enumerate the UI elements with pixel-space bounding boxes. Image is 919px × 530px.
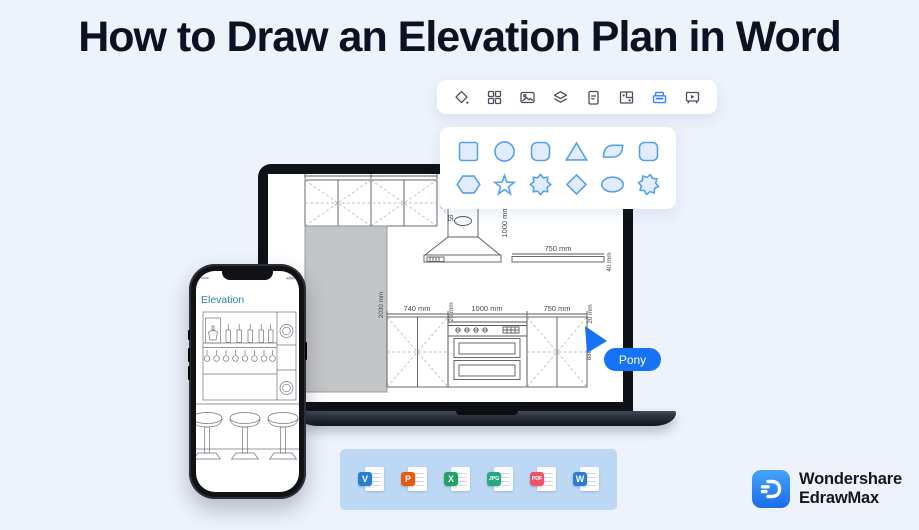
- shape-ellipse[interactable]: [599, 171, 626, 198]
- shape-rounded-square[interactable]: [635, 138, 662, 165]
- components-icon[interactable]: [485, 88, 503, 106]
- phone-screen-title: Elevation: [201, 294, 244, 306]
- shape-square[interactable]: [455, 138, 482, 165]
- edrawmax-logo-icon: [752, 470, 790, 508]
- shape-seal-star[interactable]: [635, 171, 662, 198]
- banner: How to Draw an Elevation Plan in Word 84…: [0, 0, 919, 530]
- export-formats-bar: V P X JPG PDF W: [340, 449, 617, 510]
- phone-button: [188, 366, 190, 380]
- shape-leaf[interactable]: [599, 138, 626, 165]
- dim-hood-duct: 55: [448, 214, 455, 222]
- brand-logo: Wondershare EdrawMax: [752, 470, 902, 508]
- shape-seal-star[interactable]: [527, 171, 554, 198]
- toolbar: [437, 80, 717, 114]
- jpg-file-icon: JPG: [487, 467, 513, 493]
- dim-upper-right: 840 mm: [390, 174, 417, 175]
- shape-hexagon[interactable]: [455, 171, 482, 198]
- shape-star[interactable]: [491, 171, 518, 198]
- brand-line2: EdrawMax: [799, 489, 902, 508]
- shape-diamond[interactable]: [563, 171, 590, 198]
- shapes-panel: [440, 127, 676, 209]
- dim-base-right: 750 mm: [543, 304, 570, 313]
- laptop-base: [296, 411, 676, 426]
- collaborator-name-badge: Pony: [604, 348, 661, 371]
- shape-triangle[interactable]: [563, 138, 590, 165]
- dim-shelf-width: 750 mm: [544, 244, 571, 253]
- phone-notch: [222, 271, 273, 280]
- dim-shelf-thickness: 40 mm: [606, 252, 613, 271]
- insert-image-icon[interactable]: [518, 88, 536, 106]
- word-file-icon: W: [573, 467, 599, 493]
- dim-base-wall-height: 2030 mm: [378, 292, 385, 318]
- presentation-icon[interactable]: [684, 88, 702, 106]
- phone-button: [188, 348, 190, 362]
- bar-elevation-drawing: Elevation: [196, 271, 299, 492]
- brand-line1: Wondershare: [799, 470, 902, 489]
- fill-color-icon[interactable]: [452, 88, 470, 106]
- layers-icon[interactable]: [551, 88, 569, 106]
- floor-plan-icon[interactable]: [618, 88, 636, 106]
- dim-upper-left: 840 mm: [324, 174, 351, 175]
- page-title: How to Draw an Elevation Plan in Word: [0, 13, 919, 62]
- document-icon[interactable]: [585, 88, 603, 106]
- dim-hood-height: 1000 mm: [500, 206, 509, 237]
- archive-icon[interactable]: [651, 88, 669, 106]
- powerpoint-file-icon: P: [401, 467, 427, 493]
- shape-rounded-square[interactable]: [527, 138, 554, 165]
- shape-circle[interactable]: [491, 138, 518, 165]
- pdf-file-icon: PDF: [530, 467, 556, 493]
- phone-button: [188, 330, 190, 340]
- dim-counter-left: 20 mm: [448, 302, 455, 321]
- dim-base-range: 1000 mm: [471, 304, 502, 313]
- visio-file-icon: V: [358, 467, 384, 493]
- excel-file-icon: X: [444, 467, 470, 493]
- dim-base-left: 740 mm: [403, 304, 430, 313]
- phone-button: [305, 342, 307, 360]
- phone-screen: Elevation: [196, 271, 299, 492]
- phone-mockup: Elevation: [189, 264, 306, 499]
